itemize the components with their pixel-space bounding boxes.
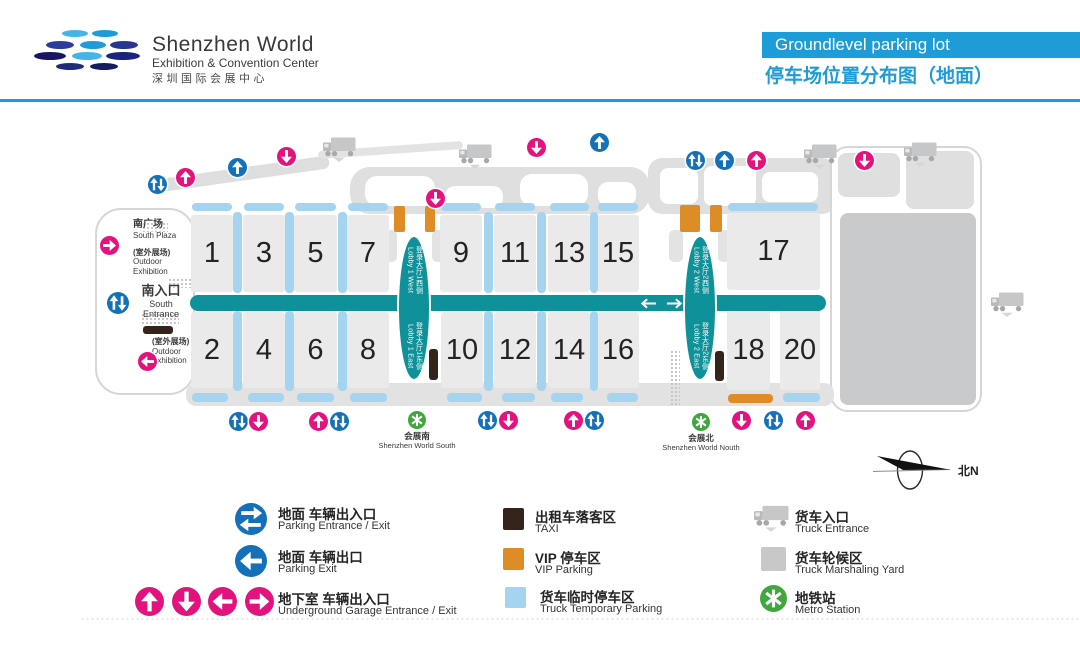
hall-3: 3	[243, 215, 285, 292]
metro-north-en: Shenzhen World Nouth	[656, 443, 746, 452]
underground-down-icon	[426, 189, 445, 208]
metro-station-icon	[760, 585, 787, 612]
truck-parking-bar	[590, 311, 598, 391]
truck-parking-bar	[285, 311, 294, 391]
truck-parking-bar	[285, 212, 294, 293]
lobby-label-en: Lobby 1 East	[406, 324, 414, 368]
header-divider	[0, 99, 1080, 102]
vip-parking-zone	[394, 206, 405, 232]
truck-parking-bar	[495, 203, 535, 211]
legend-en: Truck Temporary Parking	[540, 603, 662, 615]
hall-8: 8	[347, 312, 389, 388]
underground-right-icon	[245, 587, 274, 616]
vip-parking-zone	[728, 394, 773, 403]
vip-parking-zone	[710, 205, 722, 232]
hall-6: 6	[294, 312, 337, 388]
truck-entrance-icon	[803, 143, 837, 169]
parking-entrance-exit-icon	[229, 412, 248, 431]
underground-down-icon	[499, 411, 518, 430]
underground-left-icon	[208, 587, 237, 616]
metro-north-label: 会展北 Shenzhen World Nouth	[656, 433, 746, 452]
truck-temporary-parking-swatch	[505, 587, 526, 608]
underground-down-icon	[527, 138, 546, 157]
parking-up-icon	[715, 151, 734, 170]
lobby-label-cn: 登录大厅1西侧	[415, 246, 423, 294]
legend-en: Truck Marshaling Yard	[795, 564, 904, 576]
hall-14: 14	[548, 312, 590, 388]
truck-entrance-icon	[322, 136, 356, 162]
outdoor-exhibition-en: Outdoor	[133, 257, 176, 267]
parking-entrance-exit-icon	[585, 411, 604, 430]
parking-entrance-exit-icon	[235, 503, 267, 535]
lobby-2: Lobby 2 West 登录大厅2西侧 Lobby 2 East 登录大厅2东…	[683, 235, 717, 381]
lobby-1: Lobby 1 West 登录大厅1西侧 Lobby 1 East 登录大厅1东…	[397, 235, 431, 381]
hall-number: 12	[499, 334, 531, 367]
logo-lens	[92, 30, 118, 37]
lobby-2-east: Lobby 2 East 登录大厅2东侧	[692, 322, 709, 370]
south-entrance-cn: 南入口	[130, 283, 192, 299]
south-plaza-cn: 南广场	[133, 219, 176, 231]
truck-entrance-icon	[458, 143, 492, 169]
parking-up-icon	[590, 133, 609, 152]
parking-entrance-exit-icon	[107, 292, 129, 314]
truck-entrance-icon	[990, 291, 1024, 317]
metro-south-cn: 会展南	[372, 431, 462, 441]
lobby2-wing	[669, 230, 683, 262]
vip-parking-zone	[425, 206, 435, 232]
truck-parking-bar	[598, 203, 638, 211]
brand-title: Shenzhen World	[152, 33, 314, 57]
footer-dotted-line	[80, 617, 1080, 621]
truck-parking-bar	[192, 393, 228, 402]
outdoor-exhibition-cn: (室外展场)	[152, 337, 189, 347]
taxi-zone-swatch	[503, 508, 524, 530]
parking-up-icon	[228, 158, 247, 177]
hall-number: 3	[256, 237, 272, 270]
metro-station-icon	[692, 413, 710, 431]
parking-entrance-exit-icon	[148, 175, 167, 194]
outdoor-exhibition-label: (室外展场) Outdoor Exhibition	[152, 337, 189, 366]
truck-parking-bar	[502, 393, 535, 402]
underground-up-icon	[309, 412, 328, 431]
shenzhen-world-logo-icon	[34, 30, 146, 76]
hall-number: 6	[307, 334, 323, 367]
outdoor-exhibition-en: Outdoor	[152, 347, 189, 357]
lobby-label-en: Lobby 2 West	[692, 247, 700, 293]
parking-entrance-exit-icon	[686, 151, 705, 170]
hall-10: 10	[441, 312, 483, 388]
hall-12: 12	[494, 312, 536, 388]
hall-number: 2	[204, 334, 220, 367]
taxi-zone	[715, 351, 724, 381]
legend-en: Parking Entrance / Exit	[278, 520, 390, 532]
parking-dots	[670, 350, 680, 406]
truck-parking-bar	[447, 393, 482, 402]
truck-parking-bar	[537, 311, 546, 391]
hall-2: 2	[191, 312, 233, 388]
logo-lens	[56, 63, 84, 70]
lobby-2-west: Lobby 2 West 登录大厅2西侧	[692, 246, 709, 294]
brand-subtitle-cn: 深圳国际会展中心	[152, 70, 268, 86]
legend-en: Underground Garage Entrance / Exit	[278, 605, 457, 617]
south-entrance-label: 南入口 South Entrance	[130, 283, 192, 320]
lobby-label-cn: 登录大厅1东侧	[415, 322, 423, 370]
lobby-label-en: Lobby 1 West	[406, 247, 414, 293]
truck-parking-bar	[297, 393, 334, 402]
header: Shenzhen World Exhibition & Convention C…	[0, 0, 1080, 103]
hall-number: 10	[446, 334, 478, 367]
metro-south-en: Shenzhen World South	[372, 441, 462, 450]
logo-lens	[90, 63, 118, 70]
parking-entrance-exit-icon	[764, 411, 783, 430]
courtyard	[704, 166, 756, 206]
legend-en: Metro Station	[795, 604, 860, 616]
hall-number: 15	[602, 237, 634, 270]
hall-number: 8	[360, 334, 376, 367]
lobby-1-east: Lobby 1 East 登录大厅1东侧	[406, 322, 423, 370]
hall-number: 7	[360, 237, 376, 270]
truck-entrance-icon	[753, 504, 789, 532]
taxi-zone	[143, 326, 173, 334]
logo-lens	[46, 41, 74, 49]
legend-en: TAXI	[535, 523, 559, 535]
truck-parking-bar	[607, 393, 638, 402]
vip-parking-zone	[680, 205, 700, 232]
truck-parking-bar	[550, 203, 589, 211]
outdoor-exhibition-en: Exhibition	[133, 267, 176, 277]
outdoor-exhibition-en: Exhibition	[152, 356, 189, 366]
hall-20: 20	[780, 310, 820, 390]
truck-parking-bar	[350, 393, 387, 402]
legend-en: Truck Entrance	[795, 523, 869, 535]
lobby-label-cn: 登录大厅2西侧	[701, 246, 709, 294]
logo-lens	[34, 52, 66, 60]
underground-down-icon	[249, 412, 268, 431]
legend-en: Parking Exit	[278, 563, 337, 575]
lobby-1-west: Lobby 1 West 登录大厅1西侧	[406, 246, 423, 294]
hall-number: 5	[307, 237, 323, 270]
truck-parking-bar	[783, 393, 820, 402]
hall-number: 20	[784, 334, 816, 367]
hall-7: 7	[347, 215, 389, 292]
courtyard	[520, 174, 588, 206]
hall-13: 13	[548, 215, 590, 292]
compass-label: 北N	[958, 462, 979, 479]
truck-parking-bar	[551, 393, 583, 402]
lobby-label-en: Lobby 2 East	[692, 324, 700, 368]
truck-marshaling-yard-swatch	[761, 547, 786, 571]
south-entrance-en: South Entrance	[130, 299, 192, 321]
parking-exit-icon	[235, 545, 267, 577]
south-plaza-en: South Plaza	[133, 231, 176, 241]
hall-number: 11	[500, 237, 530, 270]
truck-parking-bar	[484, 212, 493, 293]
hall-number: 14	[553, 334, 585, 367]
hall-11: 11	[494, 215, 536, 292]
hall-number: 4	[256, 334, 272, 367]
south-entrance-road	[190, 295, 826, 311]
taxi-zone	[429, 349, 438, 380]
metro-north-cn: 会展北	[656, 433, 746, 443]
metro-station-icon	[408, 411, 426, 429]
underground-down-icon	[855, 151, 874, 170]
truck-parking-bar	[590, 212, 598, 293]
truck-entrance-icon	[903, 141, 937, 167]
truck-parking-bar	[348, 203, 388, 211]
legend-en: VIP Parking	[535, 564, 593, 576]
truck-parking-bar	[192, 203, 232, 211]
underground-up-icon	[135, 587, 164, 616]
underground-up-icon	[796, 411, 815, 430]
underground-down-icon	[732, 411, 751, 430]
truck-parking-bar	[244, 203, 284, 211]
compass: 北N	[870, 445, 1000, 497]
truck-marshaling-yard-area	[840, 213, 976, 405]
truck-parking-bar	[338, 311, 347, 391]
underground-down-icon	[277, 147, 296, 166]
parking-entrance-exit-icon	[478, 411, 497, 430]
hall-16: 16	[597, 312, 639, 388]
courtyard	[762, 172, 818, 202]
truck-parking-bar	[537, 212, 546, 293]
underground-down-icon	[172, 587, 201, 616]
logo-lens	[62, 30, 88, 37]
outdoor-exhibition-cn: (室外展场)	[133, 248, 176, 258]
parking-map-poster: Shenzhen World Exhibition & Convention C…	[0, 0, 1080, 652]
brand-subtitle: Exhibition & Convention Center	[152, 56, 319, 70]
hall-number: 17	[757, 235, 789, 268]
hall-18: 18	[727, 310, 770, 390]
truck-parking-bar	[248, 393, 284, 402]
truck-parking-bar	[484, 311, 493, 391]
truck-parking-bar	[233, 212, 242, 293]
courtyard	[365, 176, 435, 206]
page-title-cn: 停车场位置分布图（地面）	[765, 61, 993, 88]
underground-up-icon	[564, 411, 583, 430]
truck-parking-bar	[233, 311, 242, 391]
truck-parking-bar	[728, 203, 818, 211]
arrow-right-icon	[666, 297, 683, 310]
hall-number: 9	[453, 237, 469, 270]
hall-number: 1	[204, 237, 220, 270]
hall-4: 4	[243, 312, 285, 388]
underground-left-icon	[138, 352, 157, 371]
hall-number: 16	[602, 334, 634, 367]
south-plaza-label: 南广场 South Plaza (室外展场) Outdoor Exhibitio…	[133, 219, 176, 276]
metro-south-label: 会展南 Shenzhen World South	[372, 431, 462, 450]
hall-number: 18	[732, 334, 764, 367]
arrow-left-icon	[640, 297, 657, 310]
lobby-label-cn: 登录大厅2东侧	[701, 322, 709, 370]
vip-parking-swatch	[503, 548, 524, 570]
logo-lens	[110, 41, 138, 49]
parking-entrance-exit-icon	[330, 412, 349, 431]
underground-right-icon	[100, 236, 119, 255]
compass-icon	[870, 445, 954, 497]
logo-lens	[80, 41, 106, 49]
truck-parking-bar	[295, 203, 336, 211]
hall-1: 1	[191, 215, 233, 292]
truck-parking-bar	[338, 212, 347, 293]
truck-parking-bar	[441, 203, 481, 211]
underground-up-icon	[747, 151, 766, 170]
underground-entrance-up-icon	[176, 168, 195, 187]
hall-9: 9	[440, 215, 482, 292]
page-title-banner: Groundlevel parking lot	[762, 32, 1080, 58]
hall-5: 5	[294, 215, 337, 292]
hall-17: 17	[727, 213, 820, 290]
hall-number: 13	[553, 237, 585, 270]
courtyard	[660, 168, 698, 204]
logo-lens	[72, 52, 102, 60]
logo-lens	[106, 52, 140, 60]
hall-15: 15	[597, 215, 639, 292]
